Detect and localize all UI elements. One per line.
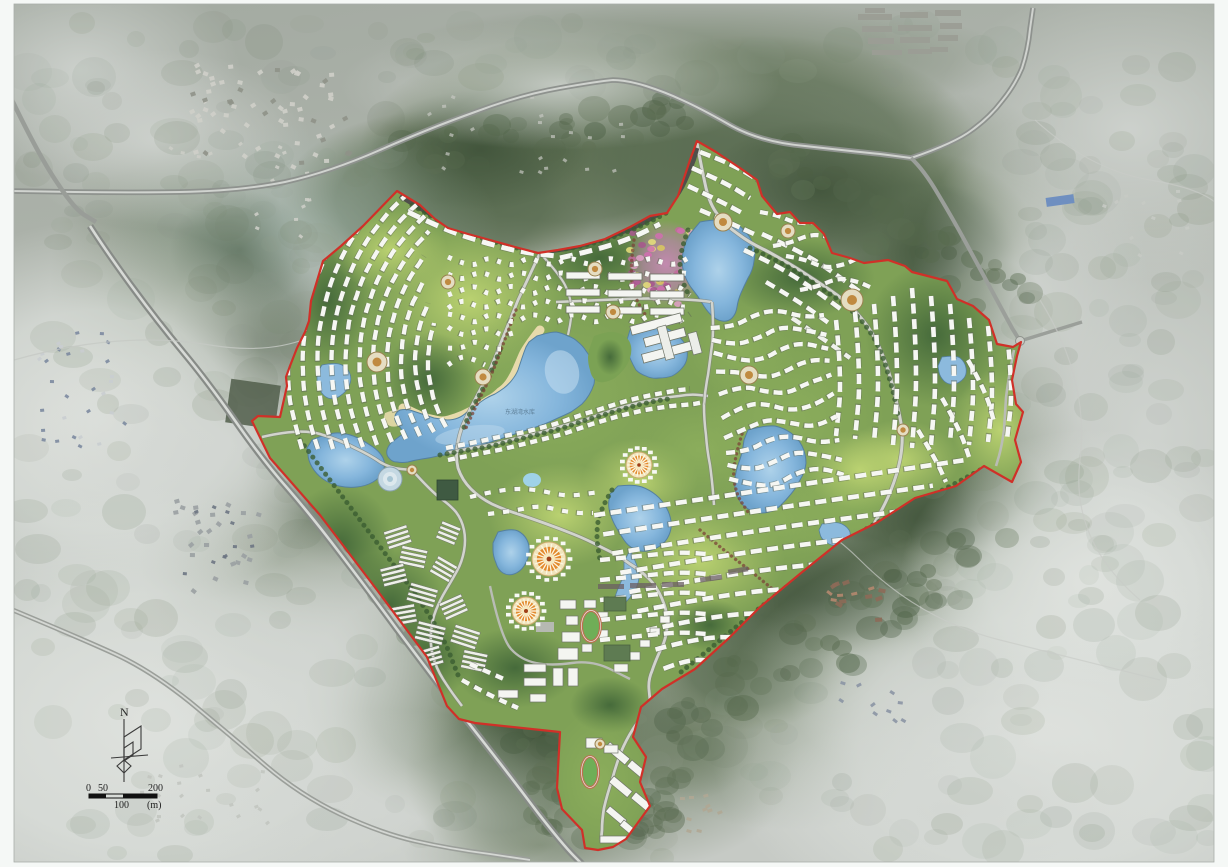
svg-text:N: N <box>120 705 129 719</box>
svg-text:200: 200 <box>148 783 163 794</box>
svg-text:(m): (m) <box>147 800 161 811</box>
svg-text:100: 100 <box>114 800 129 811</box>
svg-text:50: 50 <box>98 783 108 794</box>
svg-text:东湖湾水库: 东湖湾水库 <box>505 408 535 416</box>
svg-text:0: 0 <box>86 783 91 794</box>
